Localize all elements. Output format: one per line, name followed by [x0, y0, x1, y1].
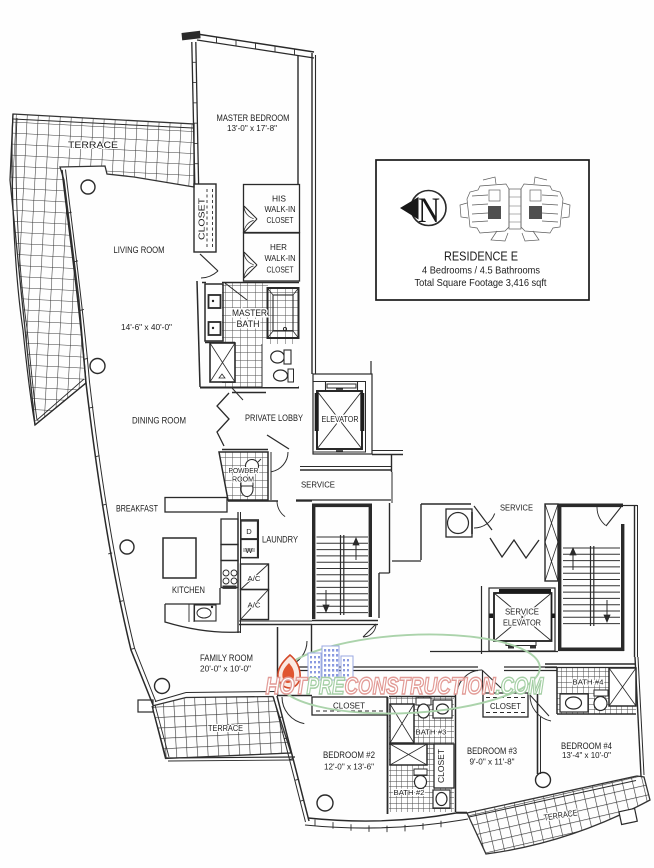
svg-text:BEDROOM #2: BEDROOM #2: [323, 750, 375, 760]
svg-text:KITCHEN: KITCHEN: [172, 585, 205, 595]
svg-text:4 Bedrooms / 4.5 Bathrooms: 4 Bedrooms / 4.5 Bathrooms: [422, 265, 540, 277]
svg-text:BATH: BATH: [237, 319, 260, 329]
svg-text:12'-0" x 13'-6": 12'-0" x 13'-6": [324, 762, 374, 772]
svg-text:LAUNDRY: LAUNDRY: [262, 535, 298, 545]
svg-text:CLOSET: CLOSET: [490, 701, 521, 711]
svg-text:PRE: PRE: [307, 673, 345, 700]
svg-text:BATH #2: BATH #2: [394, 788, 425, 797]
svg-text:BATH #3: BATH #3: [416, 728, 447, 737]
svg-text:FAMILY ROOM: FAMILY ROOM: [200, 653, 253, 663]
svg-text:SERVICE: SERVICE: [500, 503, 533, 513]
svg-text:TERRACE: TERRACE: [68, 140, 118, 150]
svg-text:20'-0" x 10'-0": 20'-0" x 10'-0": [200, 664, 251, 674]
svg-text:CLOSET: CLOSET: [267, 216, 294, 225]
svg-text:CONSTRUCTION: CONSTRUCTION: [345, 673, 497, 700]
svg-text:ELEVATOR: ELEVATOR: [503, 619, 541, 628]
svg-text:CLOSET: CLOSET: [437, 749, 446, 783]
svg-text:.COM: .COM: [496, 673, 544, 700]
svg-text:CLOSET: CLOSET: [197, 197, 207, 240]
svg-text:D: D: [246, 527, 252, 536]
svg-text:PRIVATE LOBBY: PRIVATE LOBBY: [245, 413, 303, 423]
svg-text:MASTER: MASTER: [232, 308, 267, 318]
svg-text:HER: HER: [270, 243, 287, 252]
svg-text:W: W: [245, 546, 253, 555]
svg-text:WALK-IN: WALK-IN: [265, 205, 296, 214]
svg-text:HOT: HOT: [266, 673, 309, 700]
svg-text:RESIDENCE E: RESIDENCE E: [444, 249, 518, 264]
svg-text:ELEVATOR: ELEVATOR: [322, 414, 359, 424]
svg-text:BEDROOM #3: BEDROOM #3: [467, 746, 517, 756]
svg-text:ROOM: ROOM: [232, 475, 254, 484]
svg-text:CLOSET: CLOSET: [333, 701, 365, 711]
svg-text:SERVICE: SERVICE: [505, 608, 540, 617]
svg-text:13'-4" x 10'-0": 13'-4" x 10'-0": [562, 750, 611, 760]
svg-text:A/C: A/C: [248, 601, 261, 610]
svg-text:HIS: HIS: [272, 195, 286, 204]
svg-text:SERVICE: SERVICE: [301, 480, 335, 490]
svg-text:WALK-IN: WALK-IN: [265, 254, 296, 263]
svg-text:MASTER BEDROOM: MASTER BEDROOM: [217, 113, 290, 123]
svg-text:13'-0" x 17'-8": 13'-0" x 17'-8": [227, 123, 277, 133]
svg-text:N: N: [418, 190, 440, 230]
svg-text:LIVING ROOM: LIVING ROOM: [114, 245, 165, 255]
svg-text:CLOSET: CLOSET: [267, 266, 294, 275]
svg-text:BATH #4: BATH #4: [573, 678, 604, 687]
svg-text:DINING ROOM: DINING ROOM: [132, 416, 186, 426]
svg-text:Total Square Footage 3,416 sq: Total Square Footage 3,416 sqft: [415, 277, 547, 289]
svg-text:A/C: A/C: [248, 574, 261, 583]
svg-text:BREAKFAST: BREAKFAST: [116, 504, 158, 514]
svg-text:TERRACE: TERRACE: [208, 723, 243, 733]
svg-text:14'-6" x 40'-0": 14'-6" x 40'-0": [121, 322, 172, 332]
svg-text:9'-0" x 11'-8": 9'-0" x 11'-8": [470, 757, 515, 767]
